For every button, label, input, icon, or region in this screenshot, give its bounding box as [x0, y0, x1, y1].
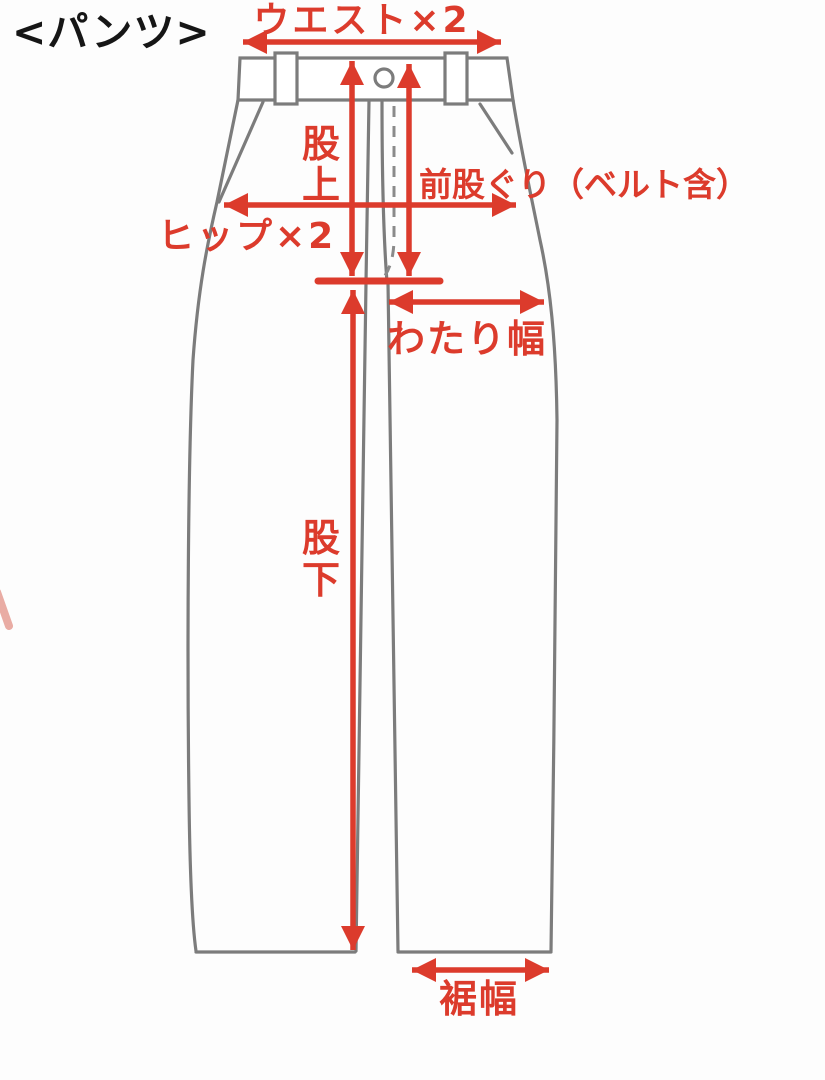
front-rise-label: 前股ぐり（ベルト含） [419, 165, 749, 204]
thigh-width-label: わたり幅 [387, 317, 547, 361]
diagram-canvas: <パンツ> [0, 0, 825, 1080]
hem-width-label: 裾幅 [439, 977, 519, 1021]
pants-measurement-diagram: <パンツ> [0, 0, 825, 1080]
inseam-label-char2: 下 [302, 558, 342, 602]
inseam-label-char1: 股 [302, 516, 342, 560]
waist-button [375, 69, 393, 87]
measurement-labels: ウエスト×2 股 上 前股ぐり（ベルト含） ヒップ×2 わたり幅 股 下 裾幅 [158, 0, 749, 1021]
rise-label-char2: 上 [302, 163, 342, 207]
belt-loop-left [275, 53, 297, 104]
right-leg-center-seam [382, 101, 387, 282]
left-inner-seam [356, 283, 366, 951]
hip-label: ヒップ×2 [158, 216, 336, 257]
right-outer-seam [513, 100, 557, 951]
rise-label-char1: 股 [302, 122, 342, 166]
right-inner-seam [388, 283, 398, 951]
fly-center-seam [366, 101, 369, 282]
belt-loop-right [445, 53, 467, 104]
page-title: <パンツ> [12, 8, 211, 56]
waist-label: ウエスト×2 [253, 0, 470, 41]
right-pocket-line [480, 104, 512, 153]
clipped-red-mark [0, 592, 9, 626]
left-pocket-line [219, 102, 263, 202]
